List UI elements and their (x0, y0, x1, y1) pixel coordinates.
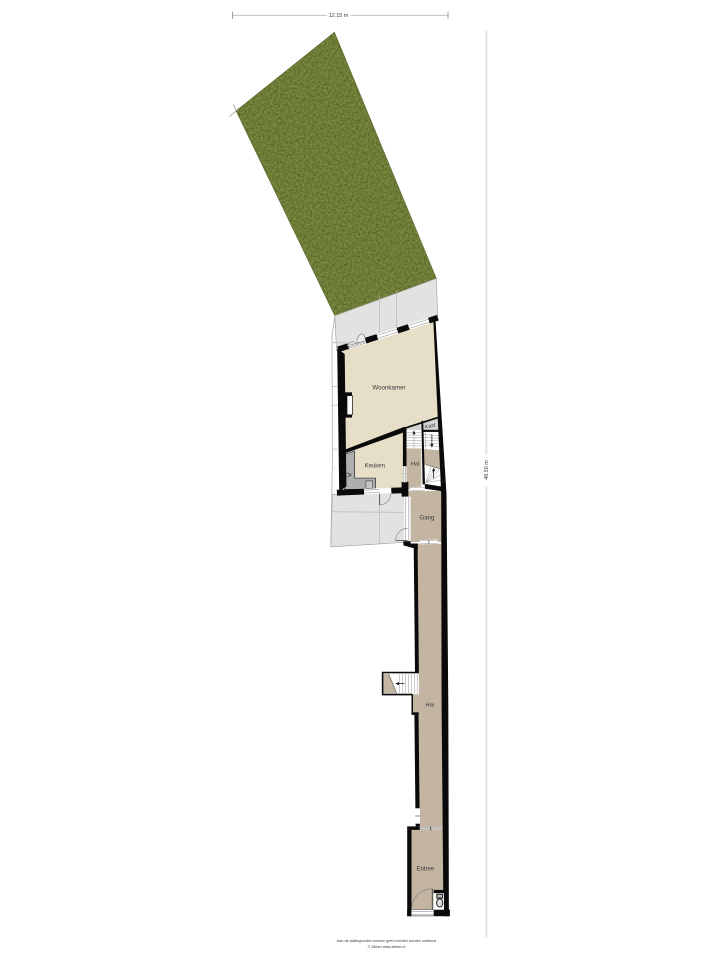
svg-text:Keuken: Keuken (365, 463, 385, 469)
svg-text:Hal: Hal (425, 703, 434, 709)
svg-text:Entree: Entree (417, 867, 435, 873)
svg-text:12.15 m: 12.15 m (329, 13, 349, 19)
svg-text:Aan de plattegronden kunnen ge: Aan de plattegronden kunnen geen rechten… (337, 939, 436, 943)
svg-text:© Zibber www.zibber.nl: © Zibber www.zibber.nl (368, 945, 406, 949)
svg-text:Woonkamer: Woonkamer (372, 385, 405, 392)
svg-text:Hal: Hal (411, 461, 420, 467)
svg-text:Gang: Gang (420, 516, 435, 522)
svg-text:48.50 m: 48.50 m (484, 460, 490, 480)
